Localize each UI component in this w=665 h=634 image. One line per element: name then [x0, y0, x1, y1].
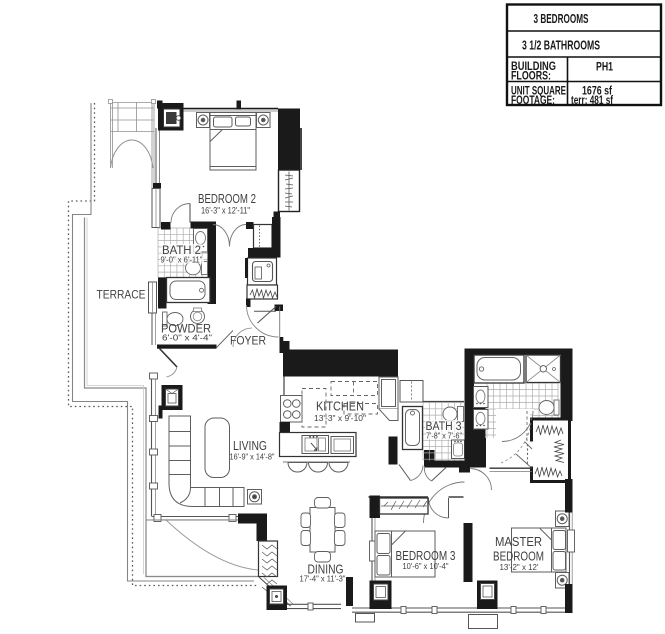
svg-text:16'-9" x 14'-8": 16'-9" x 14'-8"	[230, 452, 275, 462]
svg-text:10'-6" x 10'-4": 10'-6" x 10'-4"	[403, 561, 449, 571]
svg-text:16'-3" x 12'-11": 16'-3" x 12'-11"	[201, 206, 250, 216]
svg-text:terr: 481 sf: terr: 481 sf	[571, 95, 613, 107]
svg-text:FLOORS:: FLOORS:	[511, 71, 551, 83]
svg-text:3 BEDROOMS: 3 BEDROOMS	[534, 12, 589, 26]
svg-text:13'-3" x 9'-10": 13'-3" x 9'-10"	[314, 413, 366, 423]
svg-text:13'-2" x 12': 13'-2" x 12'	[500, 562, 539, 572]
svg-text:FOOTAGE:: FOOTAGE:	[511, 95, 555, 107]
svg-text:7'-8" x 7'-6": 7'-8" x 7'-6"	[426, 432, 462, 441]
svg-text:PH1: PH1	[596, 62, 613, 74]
svg-text:3 1/2 BATHROOMS: 3 1/2 BATHROOMS	[522, 39, 600, 53]
svg-text:BEDROOM 2: BEDROOM 2	[198, 192, 256, 206]
svg-text:6'-0" x 4'-4": 6'-0" x 4'-4"	[162, 334, 212, 343]
svg-text:MASTER: MASTER	[495, 535, 542, 549]
svg-text:17'-4" x 11'-3": 17'-4" x 11'-3"	[300, 574, 346, 584]
svg-text:TERRACE: TERRACE	[97, 290, 146, 302]
svg-text:9'-0" x 6'-11": 9'-0" x 6'-11"	[161, 256, 203, 265]
svg-text:KITCHEN: KITCHEN	[316, 400, 364, 414]
